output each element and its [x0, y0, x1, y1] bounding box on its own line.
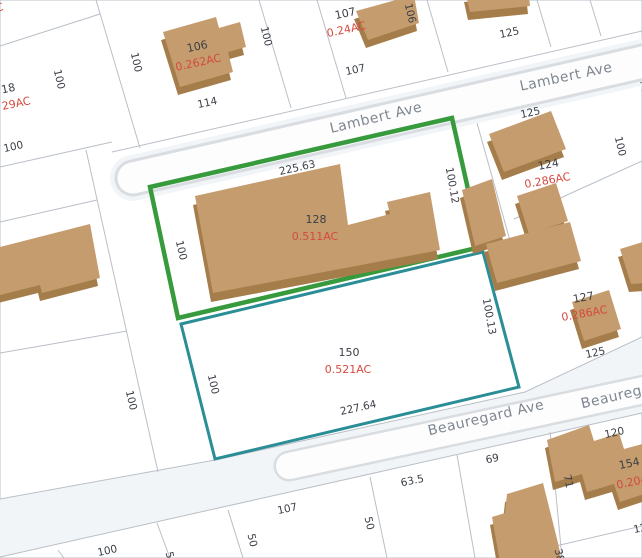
parcel-map[interactable]: C 18 29AC 100 100 100 106 0.262AC 114 10…	[0, 0, 642, 558]
dimension-label: 38	[552, 547, 567, 558]
parcel-map-stage[interactable]: C 18 29AC 100 100 100 106 0.262AC 114 10…	[0, 0, 642, 558]
parcel-150-number: 150	[339, 346, 360, 359]
parcel-128-acreage: 0.511AC	[292, 230, 339, 243]
parcel-128-number: 128	[306, 213, 327, 226]
parcel-150-acreage: 0.521AC	[325, 363, 372, 376]
